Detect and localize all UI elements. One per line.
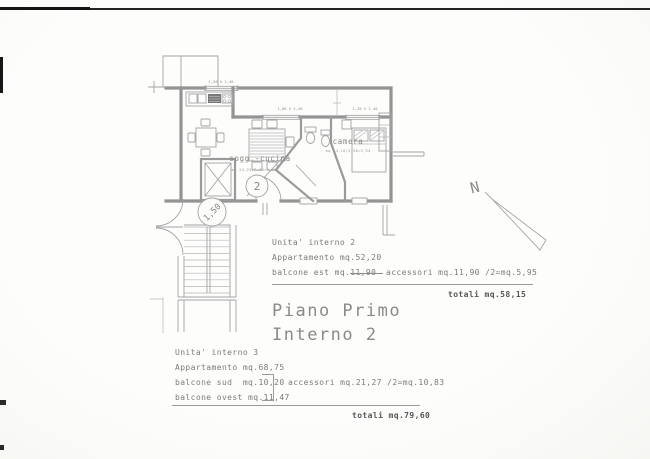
unit-number-label: 2 [254, 180, 261, 193]
kitchen-counter [186, 92, 233, 106]
unit3-title: Unita' interno 3 [175, 348, 258, 357]
north-label: N [468, 178, 481, 198]
unit2-leader-line [350, 273, 383, 274]
window-dim-mid-right: 1,20 h 2,40 [352, 106, 378, 111]
scanned-floorplan-sheet: { "plan": { "rooms": { "living": { "name… [0, 0, 650, 459]
unit2-apartment: Appartamento mq.52,20 [272, 253, 382, 262]
living-room-label: sogg.-cucina [229, 154, 290, 163]
bedroom-label: camera [333, 137, 364, 146]
unit2-title: Unita' interno 2 [272, 238, 355, 247]
floorplan-drawing: 1,20 h 2,40 1,80 h 2,40 1,20 h 2,40 [0, 0, 650, 459]
window-dim-mid-left: 1,80 h 2,40 [277, 106, 303, 111]
unit2-total: totali mq.58,15 [448, 290, 526, 299]
small-table [188, 119, 224, 156]
sheet-title-line2: Interno 2 [272, 325, 378, 345]
window-dim-top: 1,20 h 2,40 [208, 79, 234, 84]
bedroom-area-note: mq 14,10/3,58=3,94 [326, 148, 371, 153]
compass: N [468, 178, 546, 250]
elevator [201, 159, 235, 200]
sheet-title-line1: Piano Primo [272, 301, 401, 321]
unit3-apartment: Appartamento mq.68,75 [175, 363, 285, 372]
unit2-accessories: accessori mq.11,90 /2=mq.5,95 [386, 268, 537, 277]
stair-width-marker: 1,50 [198, 198, 226, 226]
unit3-accessories: accessori mq.21,27 /2=mq.10,83 [288, 378, 445, 387]
compass-needle [492, 199, 546, 250]
unit2-divider [272, 284, 533, 285]
living-room-area-note: mq 24,25/7,28=3,38 [232, 167, 277, 172]
stairs [150, 225, 236, 333]
unit3-total: totali mq.79,60 [352, 411, 430, 420]
north-balcony-strip [233, 88, 391, 119]
unit3-balcony-west: balcone ovest mq.11,47 [175, 393, 290, 402]
unit3-divider [172, 405, 420, 406]
